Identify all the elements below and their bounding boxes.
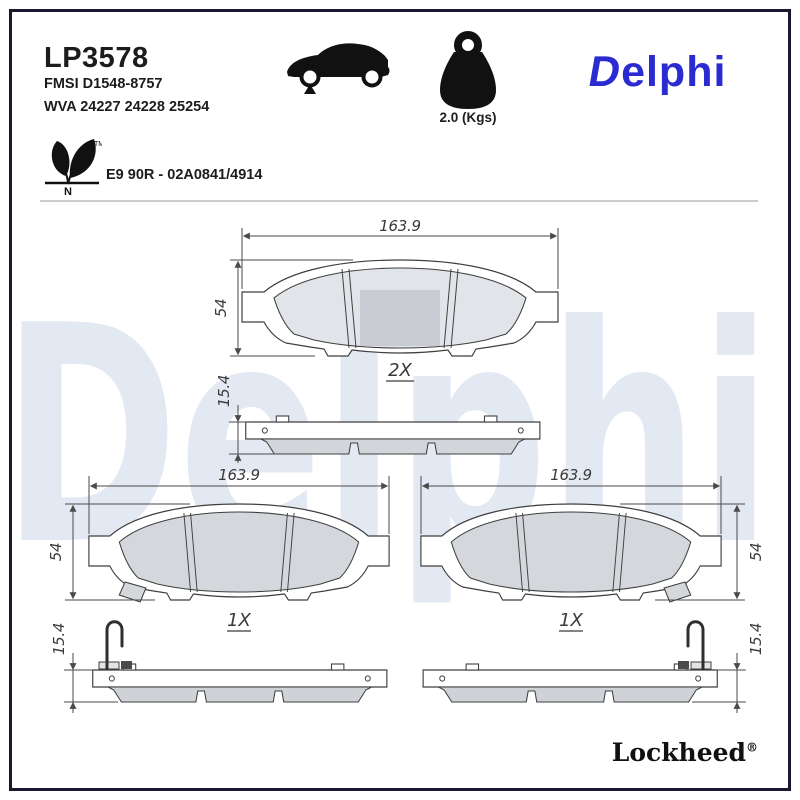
pad-front-view bbox=[242, 260, 558, 356]
thickness-value: 15.4 bbox=[50, 623, 68, 655]
weight-icon bbox=[430, 30, 506, 112]
eco-leaf-icon: TM N bbox=[42, 136, 102, 198]
wire-bracket bbox=[121, 661, 132, 669]
header-divider bbox=[40, 200, 758, 202]
eco-letter: N bbox=[64, 186, 72, 198]
delphi-logo-initial: D bbox=[585, 48, 626, 97]
drawing-top-pad: 163.9 54 2X 15.4 bbox=[205, 213, 585, 463]
length-value: 163.9 bbox=[218, 466, 259, 484]
wva-reference: WVA 24227 24228 25254 bbox=[44, 99, 209, 115]
weight-body bbox=[440, 52, 496, 109]
delphi-logo-rest: elphi bbox=[621, 48, 726, 96]
height-value: 54 bbox=[212, 299, 230, 318]
leaf-left bbox=[52, 141, 70, 176]
quantity-label: 2X bbox=[388, 360, 412, 381]
quantity-label: 1X bbox=[559, 610, 583, 631]
lockheed-wordmark: Lockheed bbox=[612, 738, 746, 767]
car-front-wheel bbox=[302, 69, 319, 86]
height-value: 54 bbox=[747, 543, 765, 562]
delphi-logo: Delphi bbox=[589, 48, 726, 97]
drawing-bottom-left-pad: 163.9 54 1X 15.4 bbox=[40, 462, 420, 717]
drawing-bottom-right-pad: 163.9 54 1X 15.4 bbox=[390, 462, 770, 717]
wire-clamp bbox=[99, 662, 119, 669]
eco-trademark: TM bbox=[94, 141, 102, 148]
thickness-value: 15.4 bbox=[747, 623, 765, 655]
registered-mark: ® bbox=[746, 741, 758, 755]
length-value: 163.9 bbox=[550, 466, 591, 484]
quantity-label: 1X bbox=[227, 610, 251, 631]
weight-value: 2.0 (Kgs) bbox=[418, 110, 518, 125]
homologation-number: E9 90R - 02A0841/4914 bbox=[106, 167, 262, 183]
height-value: 54 bbox=[47, 543, 65, 562]
front-axle-car-icon bbox=[284, 36, 396, 98]
pad-geometry bbox=[64, 476, 389, 713]
part-number: LP3578 bbox=[44, 42, 149, 75]
fmsi-reference: FMSI D1548-8757 bbox=[44, 76, 162, 92]
length-value: 163.9 bbox=[379, 217, 420, 235]
lockheed-logo: Lockheed® bbox=[612, 738, 758, 767]
leaf-right bbox=[70, 139, 96, 178]
dimension-thickness: 15.4 bbox=[215, 375, 277, 463]
pad-side-view bbox=[246, 416, 540, 454]
car-rear-wheel bbox=[364, 69, 381, 86]
pad-side-view bbox=[93, 664, 387, 702]
pad-geometry-mirrored bbox=[421, 476, 746, 713]
thickness-value: 15.4 bbox=[215, 375, 233, 407]
